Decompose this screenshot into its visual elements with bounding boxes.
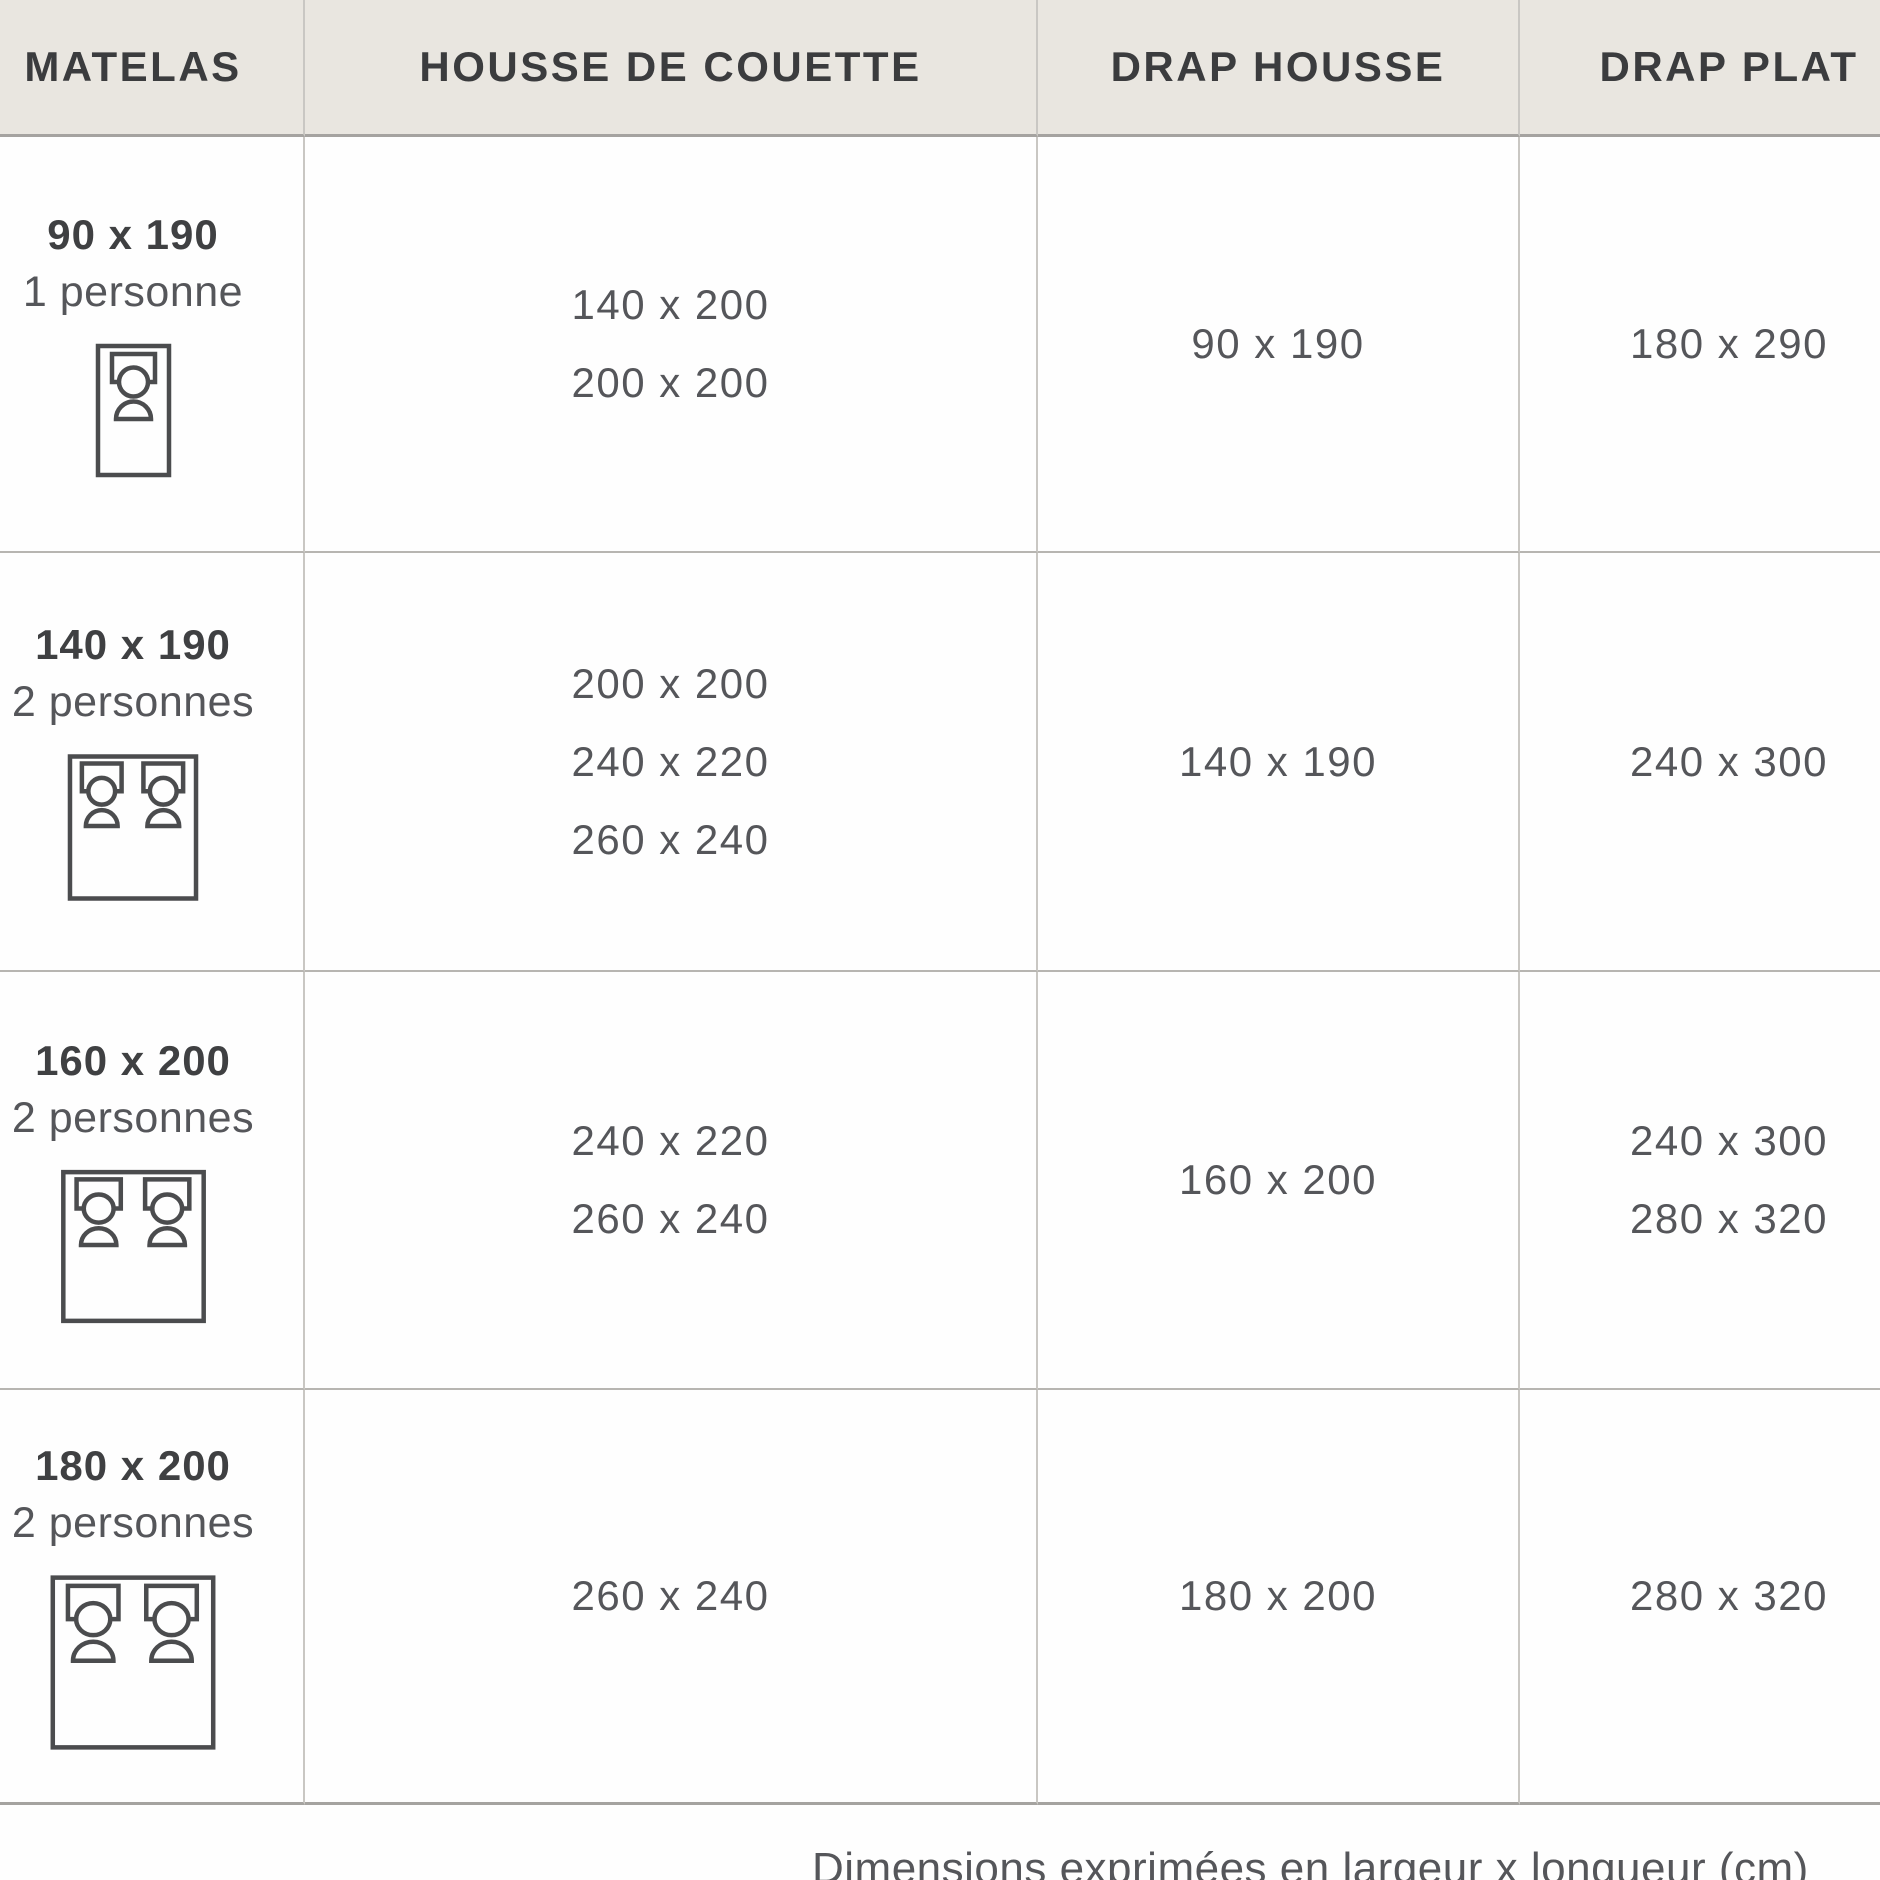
mattress-size: 160 x 200 (35, 1037, 231, 1085)
dimensions-note: Dimensions exprimées en largeur x longue… (812, 1844, 1809, 1880)
size-value: 280 x 320 (1630, 1180, 1828, 1258)
mattress-persons: 1 personne (23, 268, 243, 317)
size-value: 140 x 190 (1179, 723, 1377, 801)
mattress-size: 140 x 190 (35, 621, 231, 669)
bedding-size-guide-page: MATELAS HOUSSE DE COUETTE DRAP HOUSSE DR… (0, 0, 1880, 1880)
column-header-housse-de-couette: HOUSSE DE COUETTE (305, 0, 1038, 137)
mattress-size: 90 x 190 (47, 211, 219, 259)
table-row-3-housse-de-couette-cell: 240 x 220 260 x 240 (305, 972, 1038, 1390)
column-header-matelas: MATELAS (0, 0, 305, 137)
table-row-4-drap-housse-cell: 180 x 200 (1038, 1390, 1520, 1805)
size-value: 240 x 300 (1630, 1102, 1828, 1180)
table-row-2-drap-plat-cell: 240 x 300 (1520, 553, 1880, 972)
double-bed-icon (49, 1574, 217, 1751)
size-value: 260 x 240 (572, 801, 770, 879)
size-value: 90 x 190 (1191, 305, 1364, 383)
table-row-2-drap-housse-cell: 140 x 190 (1038, 553, 1520, 972)
size-value: 280 x 320 (1630, 1557, 1828, 1635)
column-header-label: HOUSSE DE COUETTE (419, 43, 921, 91)
size-value: 160 x 200 (1179, 1141, 1377, 1219)
size-value: 240 x 300 (1630, 723, 1828, 801)
column-header-drap-plat: DRAP PLAT (1520, 0, 1880, 137)
mattress-size: 180 x 200 (35, 1442, 231, 1490)
mattress-persons: 2 personnes (12, 1094, 254, 1143)
size-value: 180 x 290 (1630, 305, 1828, 383)
mattress-persons: 2 personnes (12, 1499, 254, 1548)
size-value: 140 x 200 (572, 266, 770, 344)
table-row-3-drap-plat-cell: 240 x 300 280 x 320 (1520, 972, 1880, 1390)
column-header-label: MATELAS (24, 43, 241, 91)
size-value: 200 x 200 (572, 344, 770, 422)
size-value: 240 x 220 (572, 1102, 770, 1180)
table-row-1-drap-plat-cell: 180 x 290 (1520, 137, 1880, 553)
size-value: 260 x 240 (572, 1180, 770, 1258)
size-value: 240 x 220 (572, 723, 770, 801)
table-row-4-mattress-cell: 180 x 200 2 personnes (0, 1390, 305, 1805)
table-row-2-mattress-cell: 140 x 190 2 personnes (0, 553, 305, 972)
double-bed-icon (60, 1169, 207, 1324)
table-row-4-housse-de-couette-cell: 260 x 240 (305, 1390, 1038, 1805)
table-row-4-drap-plat-cell: 280 x 320 (1520, 1390, 1880, 1805)
column-header-label: DRAP PLAT (1600, 43, 1859, 91)
single-bed-icon (95, 343, 172, 478)
table-row-1-housse-de-couette-cell: 140 x 200 200 x 200 (305, 137, 1038, 553)
size-value: 260 x 240 (572, 1557, 770, 1635)
column-header-label: DRAP HOUSSE (1111, 43, 1446, 91)
table-row-2-housse-de-couette-cell: 200 x 200 240 x 220 260 x 240 (305, 553, 1038, 972)
size-value: 200 x 200 (572, 645, 770, 723)
table-row-3-drap-housse-cell: 160 x 200 (1038, 972, 1520, 1390)
bedding-size-table: MATELAS HOUSSE DE COUETTE DRAP HOUSSE DR… (0, 0, 1880, 1805)
mattress-persons: 2 personnes (12, 678, 254, 727)
table-row-3-mattress-cell: 160 x 200 2 personnes (0, 972, 305, 1390)
size-value: 180 x 200 (1179, 1557, 1377, 1635)
column-header-drap-housse: DRAP HOUSSE (1038, 0, 1520, 137)
double-bed-icon (67, 753, 199, 902)
table-row-1-mattress-cell: 90 x 190 1 personne (0, 137, 305, 553)
table-row-1-drap-housse-cell: 90 x 190 (1038, 137, 1520, 553)
